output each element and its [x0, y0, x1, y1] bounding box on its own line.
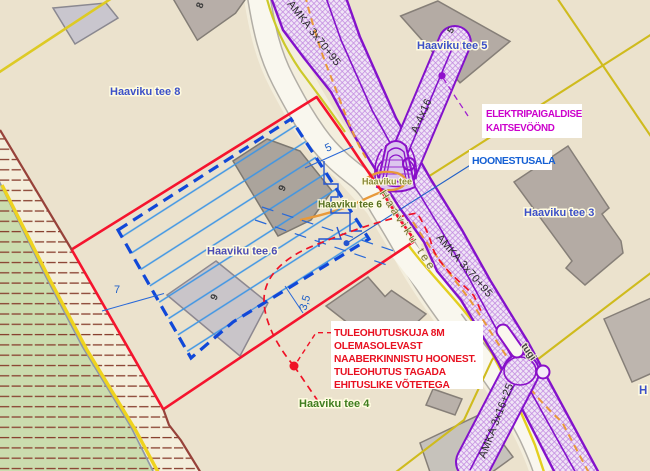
svg-text:HOONESTUSALA: HOONESTUSALA [472, 155, 556, 167]
svg-text:7: 7 [114, 284, 120, 296]
svg-text:Haaviku tee 3: Haaviku tee 3 [524, 207, 594, 219]
svg-text:Haaviku tee 8: Haaviku tee 8 [110, 86, 180, 98]
svg-text:H: H [639, 385, 647, 397]
svg-text:TULEOHUTUSKUJA 8M: TULEOHUTUSKUJA 8M [334, 328, 445, 339]
svg-text:NAABERKINNISTU HOONEST.: NAABERKINNISTU HOONEST. [334, 354, 476, 365]
svg-text:Haaviku tee 5: Haaviku tee 5 [417, 40, 487, 52]
svg-text:ELEKTRIPAIGALDISE: ELEKTRIPAIGALDISE [486, 109, 583, 120]
svg-text:KAITSEVÖÖND: KAITSEVÖÖND [486, 123, 555, 134]
svg-text:EHITUSLIKE VÕTETEGA: EHITUSLIKE VÕTETEGA [334, 378, 450, 391]
svg-text:OLEMASOLEVAST: OLEMASOLEVAST [334, 341, 423, 352]
svg-text:Haaviku tee 6: Haaviku tee 6 [318, 200, 382, 211]
svg-text:TULEOHUTUS TAGADA: TULEOHUTUS TAGADA [334, 367, 447, 378]
svg-text:Haaviku tee: Haaviku tee [362, 177, 412, 187]
svg-text:Haaviku tee 4: Haaviku tee 4 [299, 398, 370, 410]
svg-text:Haaviku tee 6: Haaviku tee 6 [207, 246, 277, 258]
